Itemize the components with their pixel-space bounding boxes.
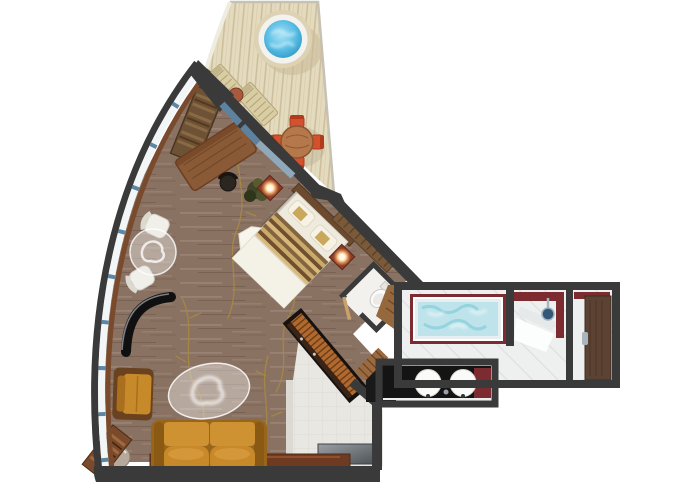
- divider-wall: [566, 288, 573, 382]
- faucet: [461, 394, 465, 398]
- round-glass-table: [130, 229, 176, 275]
- faucet: [444, 390, 449, 395]
- bathroom: [356, 286, 616, 404]
- entrance-door: [585, 296, 611, 380]
- shower-head: [542, 308, 554, 320]
- armchair: [112, 367, 154, 420]
- door-handle: [582, 332, 588, 345]
- sofa-seat: [164, 422, 209, 446]
- bottom-wall: [94, 466, 380, 482]
- faucet: [426, 394, 430, 398]
- sofa-seat: [210, 422, 255, 446]
- floor-plan-canvas: [0, 0, 680, 486]
- hot-tub-water: [264, 20, 302, 58]
- divider-wall: [506, 290, 514, 346]
- entrance-door-area: [573, 292, 611, 380]
- desk-chair: [219, 173, 237, 191]
- suite-floor-plan: [0, 0, 680, 486]
- entry-east-wall: [372, 402, 382, 470]
